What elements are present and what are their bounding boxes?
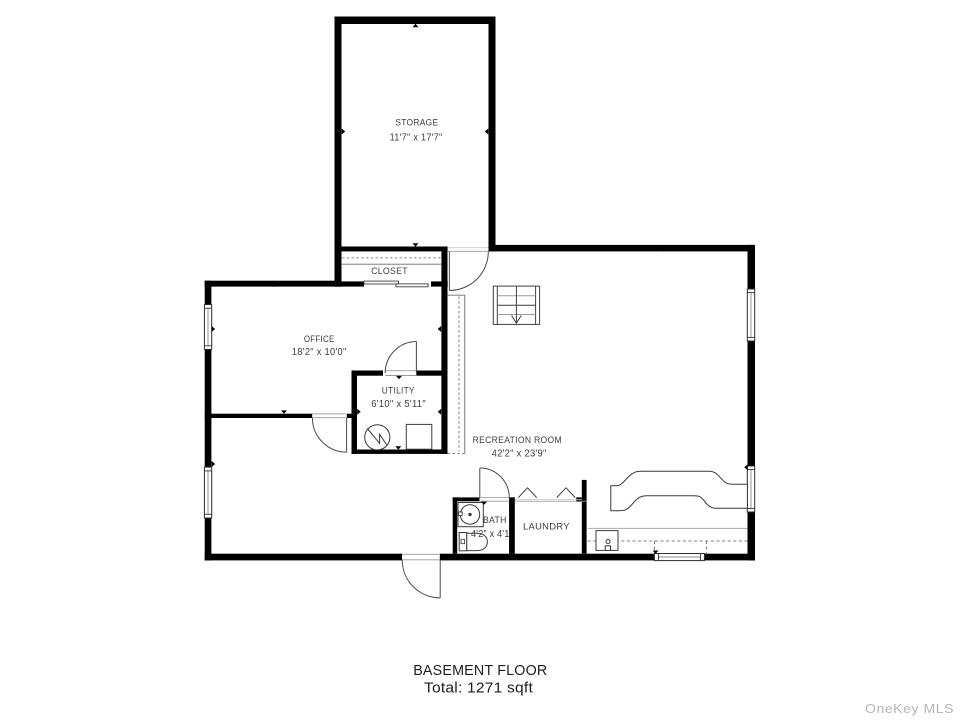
svg-text:11'7" x 17'7": 11'7" x 17'7" bbox=[390, 132, 443, 143]
svg-text:STORAGE: STORAGE bbox=[395, 117, 438, 128]
svg-text:Total: 1271 sqft: Total: 1271 sqft bbox=[424, 680, 534, 697]
svg-text:OFFICE: OFFICE bbox=[304, 334, 335, 345]
svg-text:6'10" x 5'11": 6'10" x 5'11" bbox=[371, 399, 426, 410]
svg-text:4'2" x 4'1": 4'2" x 4'1" bbox=[471, 529, 513, 540]
svg-text:42'2" x 23'9": 42'2" x 23'9" bbox=[492, 448, 547, 459]
svg-text:BASEMENT FLOOR: BASEMENT FLOOR bbox=[413, 662, 547, 679]
svg-text:CLOSET: CLOSET bbox=[371, 266, 408, 277]
svg-text:OneKey MLS: OneKey MLS bbox=[865, 702, 954, 716]
svg-text:RECREATION ROOM: RECREATION ROOM bbox=[473, 435, 562, 446]
svg-text:LAUNDRY: LAUNDRY bbox=[523, 522, 570, 533]
svg-text:UTILITY: UTILITY bbox=[382, 386, 415, 397]
svg-text:BATH: BATH bbox=[483, 515, 507, 526]
svg-text:18'2" x 10'0": 18'2" x 10'0" bbox=[292, 347, 347, 358]
